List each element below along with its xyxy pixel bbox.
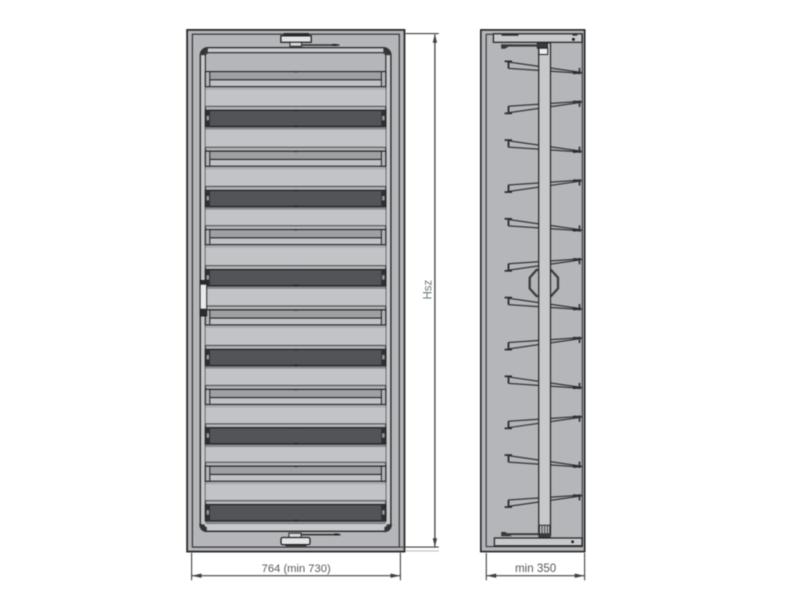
svg-text:Hsz: Hsz — [423, 279, 435, 299]
svg-text:764 (min 730): 764 (min 730) — [262, 563, 331, 575]
svg-text:min 350: min 350 — [515, 562, 556, 575]
